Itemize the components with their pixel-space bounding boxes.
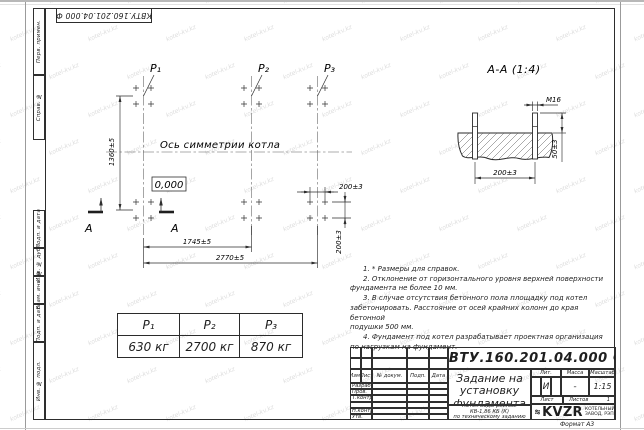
tb-doc-number: КВТУ.160.201.04.000 Ф bbox=[448, 347, 616, 369]
kvzr-logo-text: KVZR bbox=[542, 405, 583, 420]
dim-bolt-spacing-section: 200±3 bbox=[493, 169, 517, 177]
symmetry-axis-label: Ось симметрии котла bbox=[160, 140, 280, 151]
tb-title: Задание на установку фундамента bbox=[448, 369, 531, 405]
load-table: P₁ P₂ P₃ 630 кг 2700 кг 870 кг bbox=[117, 313, 303, 358]
load-table-value-p1: 630 кг bbox=[118, 336, 180, 357]
tb-lit-value: И bbox=[541, 377, 551, 396]
dim-1745: 1745±5 bbox=[183, 238, 212, 246]
load-leaders bbox=[144, 75, 329, 96]
tb-col-data: Дата bbox=[429, 369, 448, 383]
centerlines bbox=[106, 76, 352, 236]
section-letter-right: А bbox=[170, 222, 179, 235]
tb-empty-cell bbox=[372, 358, 407, 369]
note-line: подушки 500 мм. bbox=[350, 323, 614, 333]
dim-bolt-spacing-y: 200±3 bbox=[335, 230, 343, 254]
tb-lit-sub1 bbox=[531, 377, 541, 396]
load-table-header-p1: P₁ bbox=[118, 314, 180, 336]
title-block: Изм. Лист № докум. Подп. Дата Разраб. Пр… bbox=[350, 347, 616, 420]
load-label-p3: P₃ bbox=[324, 62, 336, 75]
tb-sheets-value: 1 bbox=[607, 397, 610, 403]
tb-col-podp: Подп. bbox=[407, 369, 429, 383]
tb-empty-cell bbox=[407, 347, 429, 358]
load-table-header-p3: P₃ bbox=[240, 314, 302, 336]
note-line: фундамента не более 10 мм. bbox=[350, 284, 614, 294]
tb-empty-cell bbox=[372, 347, 407, 358]
tb-col-dokum: № докум. bbox=[372, 369, 407, 383]
tb-sheet-label: Лист bbox=[531, 396, 563, 404]
format-label: Формат А3 bbox=[560, 421, 594, 428]
tb-sheets-cell: Листов 1 bbox=[563, 396, 616, 404]
tb-empty-cell bbox=[429, 347, 448, 358]
tb-empty-cell bbox=[407, 414, 429, 420]
dim-bolt-height: 50±3 bbox=[551, 139, 559, 158]
dim-bolt-spacing-x: 200±3 bbox=[339, 183, 363, 191]
note-line: 3. В случае отсутствия бетонного пола пл… bbox=[350, 294, 614, 304]
tb-scale-value: 1:15 bbox=[589, 377, 616, 396]
tb-product: Котел водогрейный КВ-1,86 КБ (К) по техн… bbox=[448, 405, 531, 420]
tb-product-line: по техническому заданию bbox=[453, 415, 525, 420]
kvzr-logo-icon bbox=[535, 406, 540, 418]
tb-empty-cell bbox=[361, 347, 372, 358]
note-line: 4. Фундамент под котел разрабатывает про… bbox=[350, 333, 614, 343]
section-view: А-А (1:4) bbox=[430, 63, 587, 184]
section-letter-left: А bbox=[84, 222, 93, 235]
technical-notes: 1. * Размеры для справок. 2. Отклонение … bbox=[350, 265, 614, 352]
load-label-p2: P₂ bbox=[258, 62, 270, 75]
tb-empty-cell bbox=[361, 358, 372, 369]
bolt-thread-label: М16 bbox=[546, 96, 561, 104]
anchor-bolt-crosses bbox=[133, 85, 328, 221]
tb-empty-cell bbox=[407, 358, 429, 369]
tb-empty-cell bbox=[429, 358, 448, 369]
elevation-mark: 0,000 bbox=[155, 180, 184, 191]
tb-empty-cell bbox=[350, 358, 361, 369]
tb-empty-cell bbox=[429, 414, 448, 420]
tb-col-list: Лист bbox=[361, 369, 372, 383]
tb-empty-cell bbox=[350, 347, 361, 358]
load-label-p1: P₁ bbox=[150, 62, 161, 75]
tb-sheets-label: Листов bbox=[569, 397, 588, 403]
section-title: А-А (1:4) bbox=[486, 63, 540, 76]
tb-col-izm: Изм. bbox=[350, 369, 361, 383]
plan-dimension-lines bbox=[116, 96, 351, 268]
note-line: 2. Отклонение от горизонтального уровня … bbox=[350, 275, 614, 285]
tb-logo-cell: KVZR КОТЕЛЬНЫЙ ЗАВОД, РЭП bbox=[531, 404, 616, 420]
tb-title-line: установку bbox=[460, 385, 519, 397]
tb-scale-header: Масштаб bbox=[589, 369, 616, 377]
load-table-header-p2: P₂ bbox=[180, 314, 240, 336]
tb-lit-sub3 bbox=[551, 377, 561, 396]
tb-row-utv: Утв. bbox=[350, 414, 372, 420]
tb-lit-header: Лит. bbox=[531, 369, 561, 377]
note-line: 1. * Размеры для справок. bbox=[350, 265, 614, 275]
tb-title-line: фундамента bbox=[453, 398, 526, 405]
company-name: КОТЕЛЬНЫЙ ЗАВОД, РЭП bbox=[585, 407, 615, 417]
tb-mass-value: - bbox=[561, 377, 589, 396]
dim-2770: 2770±5 bbox=[216, 254, 245, 262]
note-line: забетонировать. Расстояние от осей крайн… bbox=[350, 304, 614, 323]
tb-mass-header: Масса bbox=[561, 369, 589, 377]
drawing-sheet: kotel-kv.kzkotel-kv.kzkotel-kv.kzkotel-k… bbox=[0, 0, 644, 430]
tb-empty-cell bbox=[372, 414, 407, 420]
dim-1360: 1360±5 bbox=[108, 137, 116, 166]
load-table-value-p2: 2700 кг bbox=[180, 336, 240, 357]
load-table-value-p3: 870 кг bbox=[240, 336, 302, 357]
plan-view: P₁ P₂ P₃ Ось симметрии котла 0,000 bbox=[84, 62, 363, 268]
